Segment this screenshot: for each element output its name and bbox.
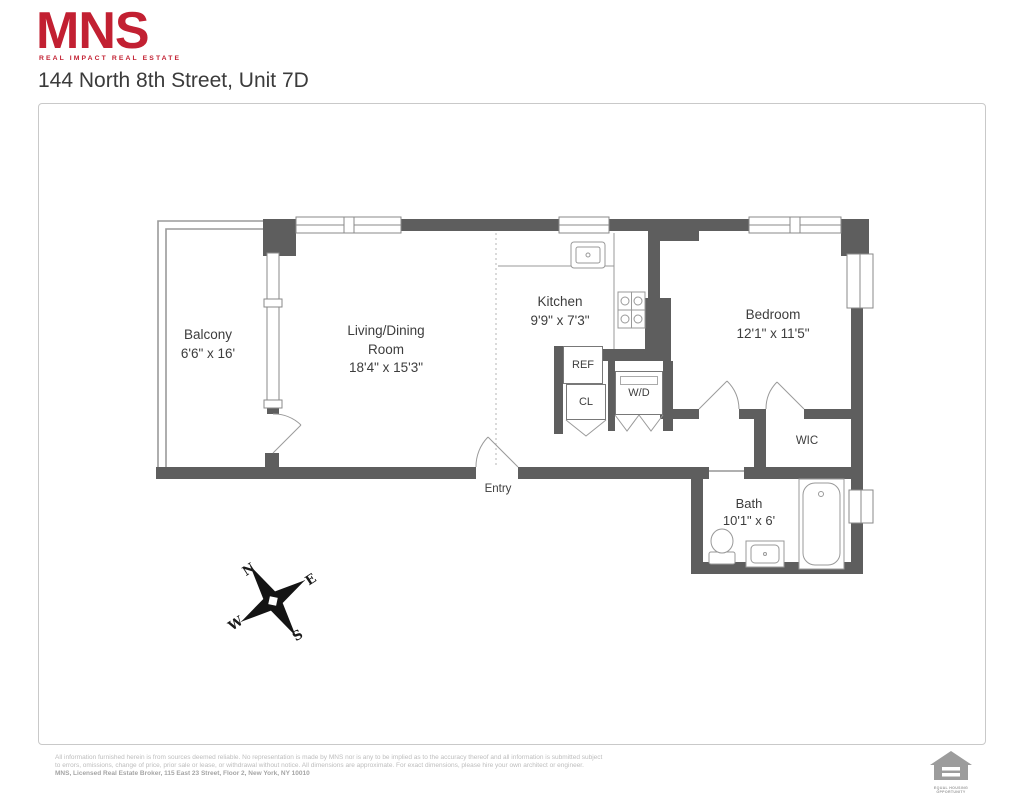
kitchen-window (559, 217, 609, 233)
kitchen-label: Kitchen9'9" x 7'3" (530, 293, 589, 330)
bath-window (849, 490, 873, 523)
toilet-icon (709, 529, 735, 564)
closet-bifold-door-icon (566, 420, 606, 436)
mns-logo: MNS (36, 6, 149, 56)
stove-icon (618, 292, 645, 328)
equal-housing-house-icon (929, 750, 973, 781)
floorplan-canvas: N E W S REF CL W/D Balcony6'6" x 16' Liv… (38, 103, 986, 745)
balcony-window-wall (264, 253, 282, 408)
washer-dryer-box: W/D (615, 371, 663, 415)
mns-logo-tagline: REAL IMPACT REAL ESTATE (39, 55, 181, 62)
floorplan-drawing: N E W S (39, 104, 985, 744)
balcony-label: Balcony6'6" x 16' (181, 326, 235, 363)
disclaimer-line-2: to errors, omissions, change of price, p… (55, 762, 735, 770)
kitchen-dims: 9'9" x 7'3" (530, 313, 589, 328)
page-title: 144 North 8th Street, Unit 7D (38, 69, 309, 93)
bathtub-icon (799, 479, 844, 569)
compass-s-label: S (290, 627, 306, 645)
bedroom-side-window (847, 254, 873, 308)
equal-housing-label: EQUAL HOUSING OPPORTUNITY (928, 786, 974, 794)
compass-e-label: E (303, 571, 320, 589)
bath-dims: 10'1" x 6' (723, 513, 775, 528)
bedroom-door-arc (699, 381, 739, 409)
compass-w-label: W (225, 614, 247, 635)
wic-label: WIC (796, 435, 818, 447)
living-room-dims: 18'4" x 15'3" (349, 360, 423, 375)
equal-housing-logo: EQUAL HOUSING OPPORTUNITY (928, 750, 974, 794)
bedroom-label: Bedroom12'1" x 11'5" (736, 306, 809, 343)
wd-bifold-door-icon (639, 415, 663, 431)
wic-door-arc (766, 382, 804, 409)
bath-label: Bath10'1" x 6' (723, 495, 775, 529)
entry-door-arc (476, 437, 518, 467)
ref-label: REF (572, 359, 594, 371)
bedroom-dims: 12'1" x 11'5" (736, 326, 809, 341)
entry-label: Entry (485, 483, 512, 495)
balcony-door-arc (273, 414, 301, 453)
bedroom-top-window (749, 217, 841, 233)
balcony-dims: 6'6" x 16' (181, 346, 235, 361)
doors-layer (273, 381, 804, 471)
wd-bifold-door-icon (615, 415, 639, 431)
wd-label: W/D (628, 387, 649, 399)
cl-label: CL (579, 396, 593, 408)
kitchen-sink-icon (571, 242, 605, 268)
bath-sink-icon (746, 541, 784, 567)
compass-rose: N E W S (218, 545, 327, 657)
closet-box: CL (566, 384, 606, 420)
living-room-label: Living/Dining Room18'4" x 15'3" (347, 322, 424, 378)
living-room-window (296, 217, 401, 233)
disclaimer-line-1: All information furnished herein is from… (55, 754, 735, 762)
broker-address-line: MNS, Licensed Real Estate Broker, 115 Ea… (55, 770, 735, 778)
disclaimer-text: All information furnished herein is from… (55, 754, 735, 778)
refrigerator-box: REF (563, 346, 603, 384)
